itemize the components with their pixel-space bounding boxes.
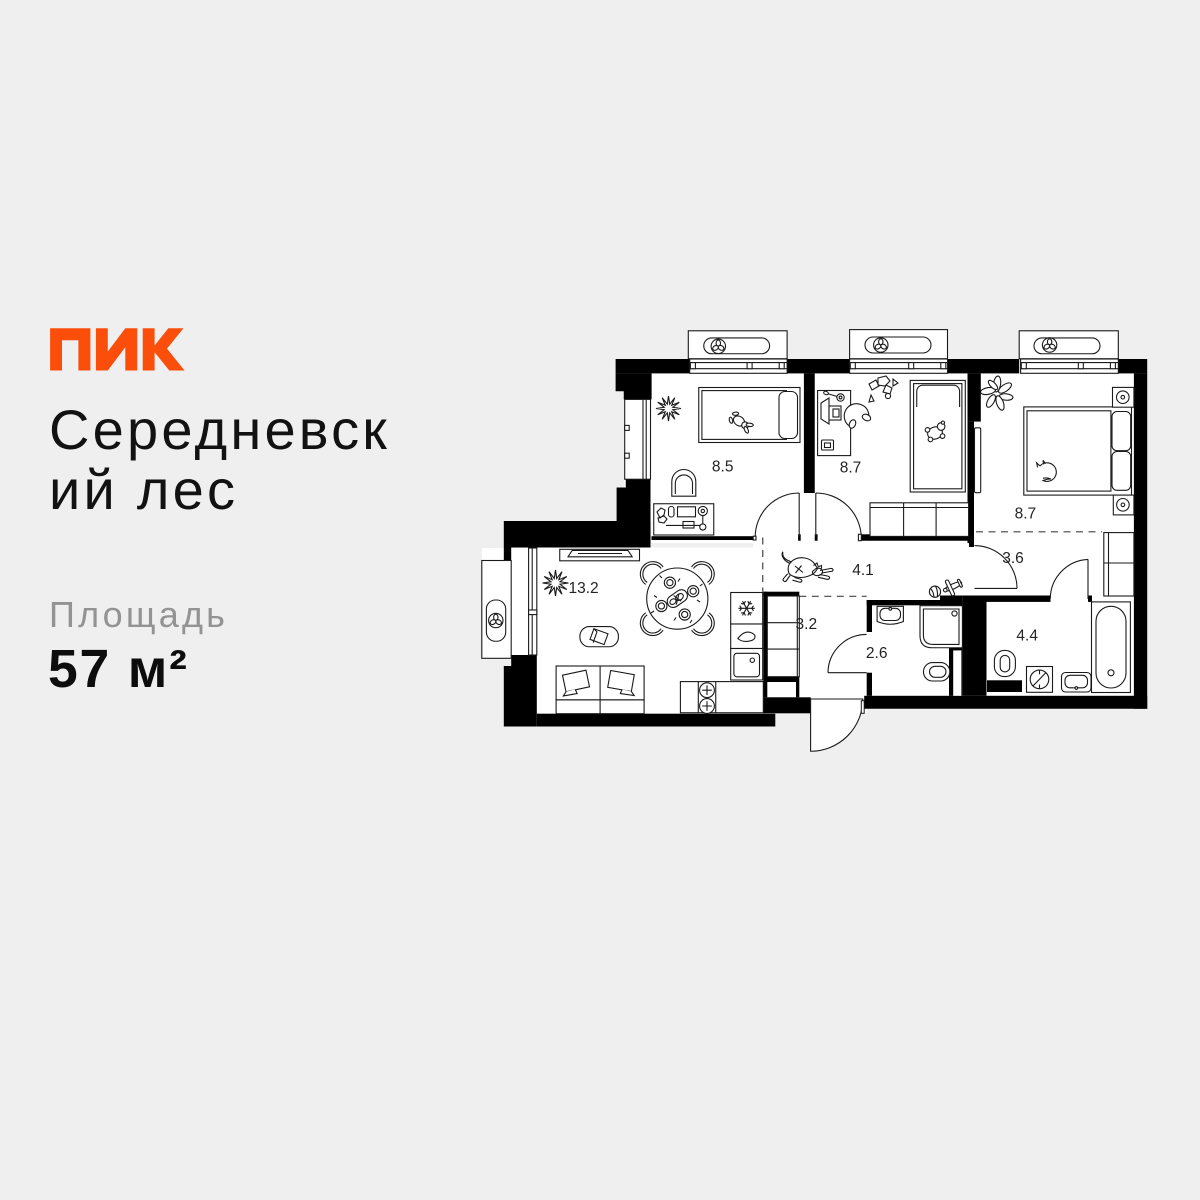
svg-text:13.2: 13.2: [569, 580, 599, 597]
svg-text:8.7: 8.7: [1015, 505, 1037, 522]
svg-text:4.1: 4.1: [852, 562, 874, 579]
svg-text:3.2: 3.2: [796, 616, 818, 633]
svg-text:3.6: 3.6: [1002, 550, 1024, 567]
svg-text:8.5: 8.5: [712, 458, 734, 475]
svg-text:4.4: 4.4: [1016, 627, 1038, 644]
svg-text:8.7: 8.7: [840, 459, 862, 476]
svg-text:2.6: 2.6: [866, 645, 888, 662]
